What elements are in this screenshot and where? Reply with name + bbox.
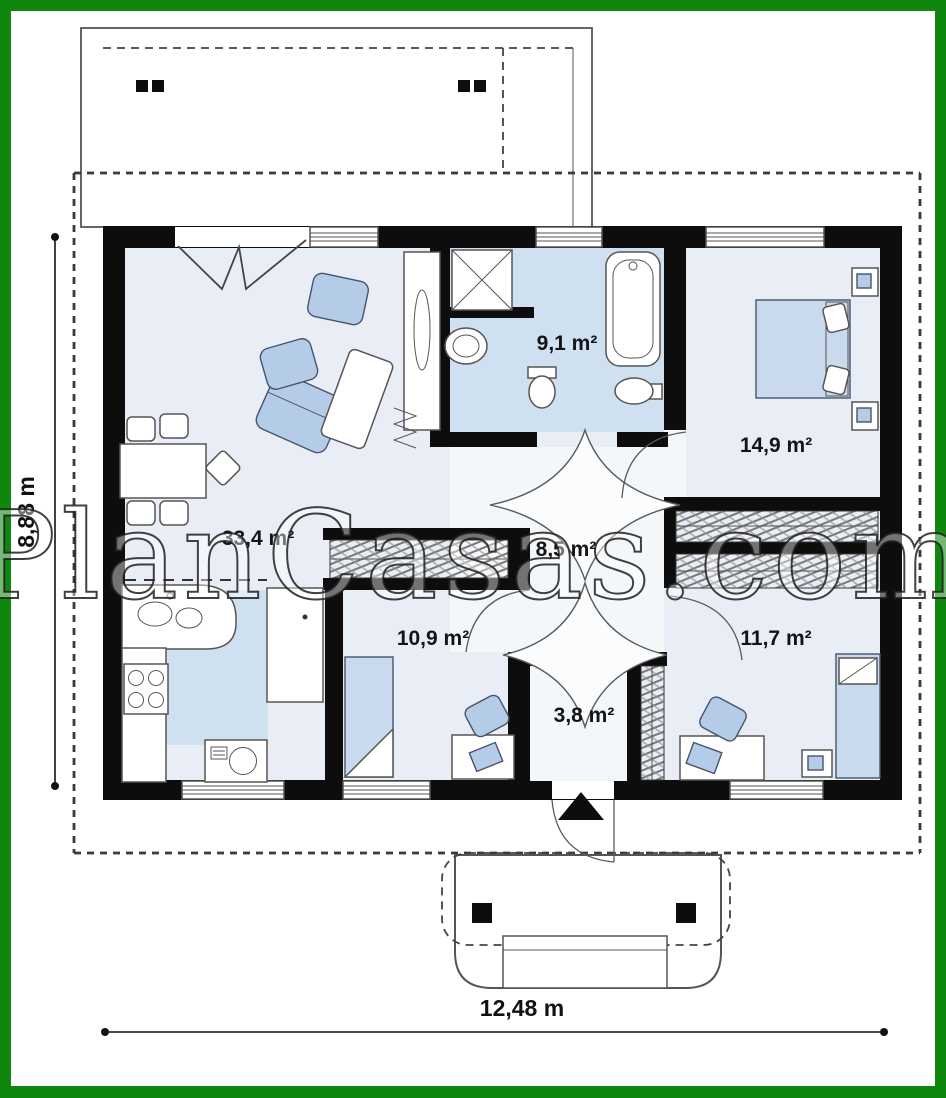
green-border-frame: 33,4 m² 9,1 m² 14,9 m² 8,5 m² 10,9 m² 11… (0, 0, 946, 1098)
window-bedroom1 (706, 227, 824, 247)
porch-steps (503, 936, 667, 988)
shower-icon (452, 250, 512, 310)
porch-post (472, 903, 492, 923)
porch (442, 792, 730, 988)
porch-post (676, 903, 696, 923)
label-bedroom2-area: 10,9 m² (397, 627, 469, 650)
hob-icon (124, 664, 168, 714)
floor-plan-canvas: 33,4 m² 9,1 m² 14,9 m² 8,5 m² 10,9 m² 11… (0, 0, 946, 1098)
watermark-text: PlanCasas.com (0, 485, 946, 627)
window-bathroom (536, 227, 602, 247)
washing-machine-icon (205, 740, 267, 782)
label-bedroom1-area: 14,9 m² (740, 434, 812, 457)
window-bedroom2 (343, 781, 430, 799)
window-kitchen (182, 781, 284, 799)
dimension-width-label: 12,48 m (480, 995, 564, 1021)
window-bedroom3 (730, 781, 823, 799)
bathtub-icon (606, 252, 660, 366)
chair (127, 417, 155, 441)
window-living-top (310, 227, 378, 247)
chair (160, 414, 188, 438)
label-entry-area: 3,8 m² (554, 704, 615, 727)
terrace (81, 28, 592, 227)
wardrobe-entry (641, 666, 664, 780)
dimension-width: 12,48 m (101, 995, 888, 1036)
toilet-icon (528, 367, 556, 408)
tall-cabinet (404, 252, 440, 430)
washbasin-icon (445, 328, 487, 364)
label-bathroom-area: 9,1 m² (537, 332, 598, 355)
label-bedroom3-area: 11,7 m² (740, 627, 811, 650)
